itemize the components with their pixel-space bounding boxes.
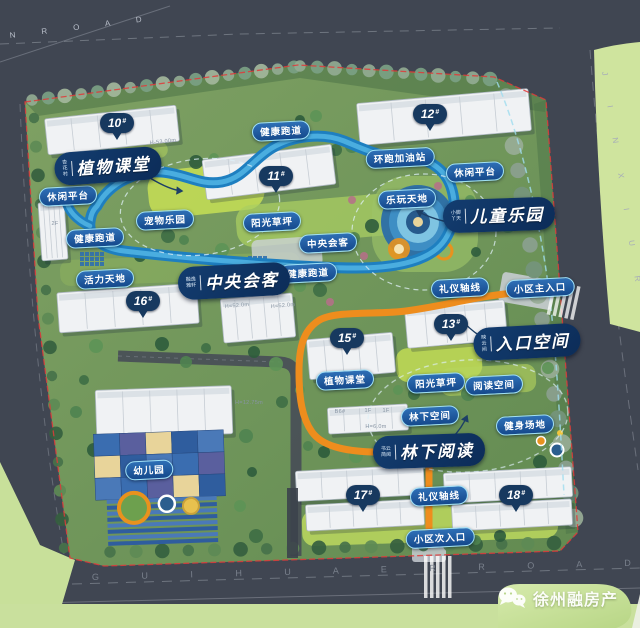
feature-label-prefix: 小脚丫天 (451, 210, 461, 222)
building-number-pin: 18# (499, 485, 533, 512)
wechat-icon (497, 586, 527, 610)
building-height-note: H-53.00m (149, 138, 176, 147)
amenity-label-pill: 乐玩天地 (378, 188, 437, 210)
amenity-label-pill: 健康跑道 (66, 227, 125, 249)
building-height-note: B6# (335, 409, 346, 415)
feature-label-prefix: 书云简阅 (381, 446, 391, 458)
amenity-label-pill: 阅读空间 (465, 374, 524, 396)
amenity-label-pill: 林下空间 (401, 405, 460, 427)
building-height-note: H=52.0m (224, 302, 249, 310)
building-height-note: H=12.75m (235, 400, 263, 406)
watermark-brand: 徐州融房产 (533, 586, 618, 610)
building-height-note: 2F (51, 221, 58, 227)
watermark: 徐州融房产 (497, 586, 618, 610)
feature-area-label: 融逸雅轩中央会客 (177, 262, 291, 301)
feature-area-label: 杏花村植物课堂 (53, 146, 162, 186)
amenity-label-pill: 小区次入口 (405, 527, 474, 550)
building-number-pin: 10# (100, 113, 134, 140)
feature-label-prefix: 融逸雅轩 (186, 276, 197, 289)
feature-label-prefix: 杏花村 (62, 159, 68, 177)
building-number-pin: 16# (126, 291, 160, 318)
feature-area-label: 映云间入口空间 (473, 323, 582, 362)
amenity-label-pill: 中央会客 (299, 232, 358, 254)
amenity-label-pill: 阳光草坪 (407, 372, 466, 394)
amenity-label-pill: 健身场地 (496, 414, 555, 436)
amenity-label-pill: 休闲平台 (446, 161, 505, 183)
amenity-label-pill: 小区主入口 (505, 277, 574, 300)
building-number-pin: 11# (259, 166, 293, 193)
building-height-note: H=6.0m (365, 424, 386, 430)
amenity-label-pill: 宠物乐园 (136, 209, 195, 231)
building-number-pin: 15# (330, 328, 364, 355)
feature-label-text: 植物课堂 (76, 151, 151, 180)
amenity-label-pill: 休闲平台 (39, 185, 98, 207)
amenity-label-pill: 礼仪轴线 (410, 485, 469, 507)
feature-area-label: 小脚丫天儿童乐园 (442, 197, 555, 234)
building-number-pin: 12# (413, 104, 447, 131)
building-number-pin: 13# (434, 314, 468, 341)
amenity-label-pill: 阳光草坪 (243, 211, 302, 233)
feature-label-text: 入口空间 (495, 327, 570, 355)
building-height-note: H=52.0m (270, 302, 295, 310)
feature-label-text: 中央会客 (204, 266, 279, 294)
feature-label-text: 林下阅读 (400, 437, 475, 464)
building-height-note: 1F (364, 408, 371, 414)
amenity-label-pill: 健康跑道 (252, 120, 311, 142)
amenity-label-pill: 活力天地 (76, 268, 135, 290)
building-number-pin: 17# (346, 485, 380, 512)
feature-label-text: 儿童乐园 (470, 201, 545, 228)
amenity-label-pill: 礼仪轴线 (431, 277, 490, 299)
site-plan-map: N R O A D J I N X I U R O A D G U I H U … (0, 0, 640, 628)
feature-label-prefix: 映云间 (481, 335, 487, 353)
amenity-label-pill: 环跑加油站 (365, 147, 434, 170)
building-height-note: 1F (382, 408, 389, 414)
amenity-label-pill: 植物课堂 (316, 369, 375, 391)
kindergarten-label-pill: 幼儿园 (125, 459, 173, 480)
feature-area-label: 书云简阅林下阅读 (372, 433, 485, 470)
